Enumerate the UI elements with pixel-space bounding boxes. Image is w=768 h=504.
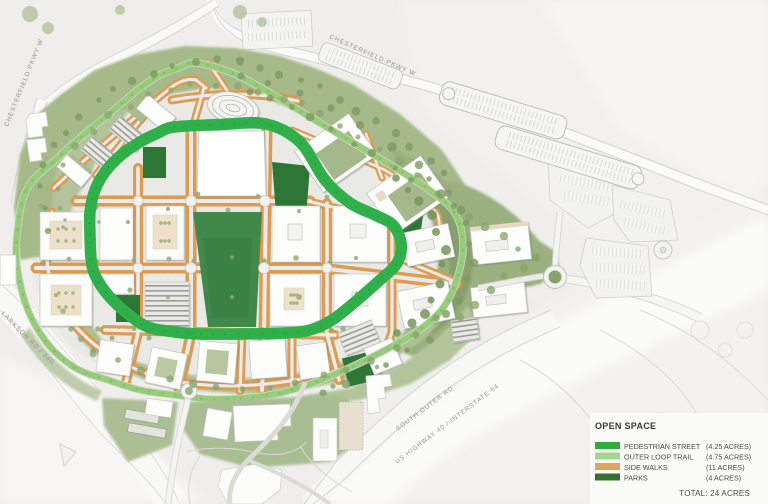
svg-text:(4 ACRES): (4 ACRES) <box>706 474 741 483</box>
svg-text:PEDESTRIAN STREET: PEDESTRIAN STREET <box>624 442 701 451</box>
svg-text:TOTAL: 24 ACRES: TOTAL: 24 ACRES <box>679 489 750 498</box>
svg-text:OPEN SPACE: OPEN SPACE <box>595 421 656 431</box>
svg-text:OUTER LOOP TRAIL: OUTER LOOP TRAIL <box>624 453 693 462</box>
svg-text:(11 ACRES): (11 ACRES) <box>706 463 745 472</box>
svg-text:(4.75 ACRES): (4.75 ACRES) <box>706 453 751 462</box>
svg-text:SIDE WALKS: SIDE WALKS <box>624 463 668 472</box>
svg-text:(4.25 ACRES): (4.25 ACRES) <box>706 442 751 451</box>
svg-text:PARKS: PARKS <box>624 474 648 483</box>
